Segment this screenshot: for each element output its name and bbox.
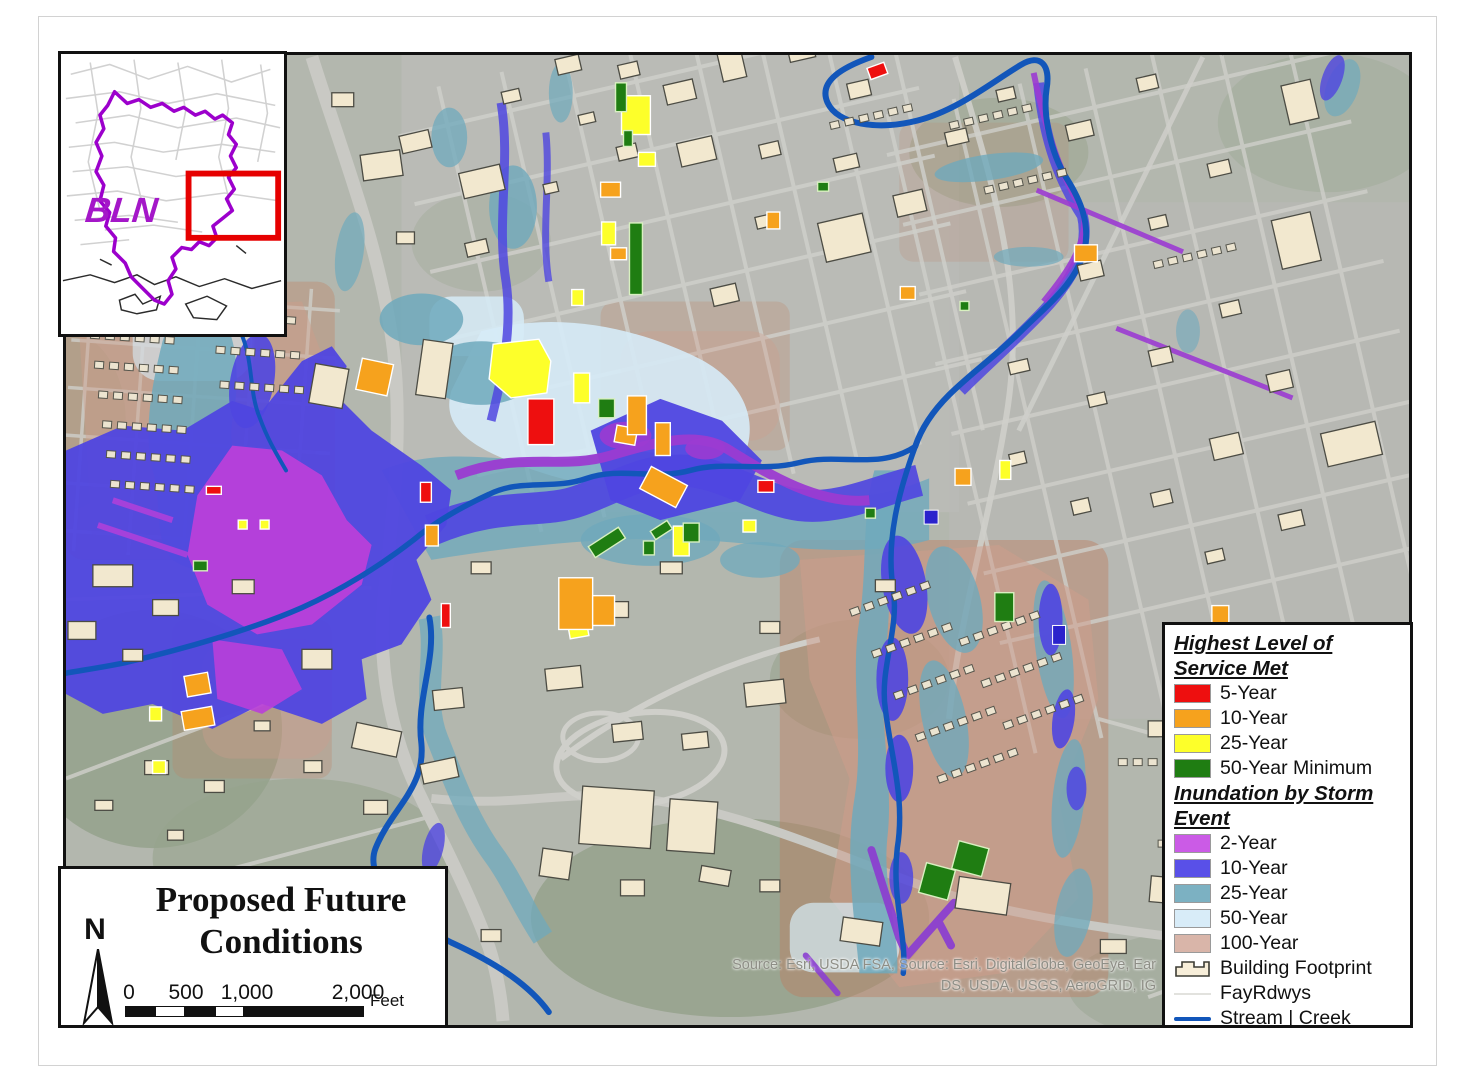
- map-title-line2: Conditions: [123, 921, 439, 963]
- legend-item-service-10yr: 10-Year: [1174, 706, 1402, 731]
- legend-item-building-footprint: Building Footprint: [1174, 956, 1402, 981]
- north-label: N: [69, 913, 121, 947]
- legend-building-footprint-icon: [1174, 959, 1211, 979]
- map-title-line1: Proposed Future: [123, 879, 439, 921]
- flood-map-page: Source: Esri, USDA FSA, Source: Esri, Di…: [0, 0, 1473, 1080]
- legend-swatch-5yr: [1174, 684, 1211, 703]
- attribution-line2: DS, USDA, USGS, AeroGRID, IG: [600, 976, 1156, 997]
- legend-item-stream-creek: Stream | Creek: [1174, 1006, 1402, 1031]
- inset-watershed-label: BLN: [83, 191, 160, 230]
- scale-bar-graphic: [125, 1006, 364, 1017]
- scale-tick-0: 0: [123, 981, 135, 1005]
- legend-item-storm-100yr: 100-Year: [1174, 931, 1402, 956]
- scale-tick-500: 500: [168, 981, 203, 1005]
- legend-item-storm-25yr: 25-Year: [1174, 881, 1402, 906]
- legend-fayrdwys-line: [1174, 993, 1211, 995]
- inset-extent-box[interactable]: [189, 174, 279, 238]
- legend-swatch-10yr: [1174, 709, 1211, 728]
- map-attribution: Source: Esri, USDA FSA, Source: Esri, Di…: [600, 955, 1156, 997]
- map-title: Proposed Future Conditions: [123, 879, 439, 963]
- inset-locator-map[interactable]: BLN: [58, 51, 287, 337]
- legend-swatch-storm-50yr: [1174, 909, 1211, 928]
- legend-swatch-storm-2yr: [1174, 834, 1211, 853]
- legend-swatch-storm-100yr: [1174, 934, 1211, 953]
- legend-item-service-50yr: 50-Year Minimum: [1174, 756, 1402, 781]
- map-legend: Highest Level of Service Met 5-Year 10-Y…: [1162, 622, 1413, 1028]
- north-arrow: N: [75, 913, 121, 1032]
- legend-item-service-25yr: 25-Year: [1174, 731, 1402, 756]
- north-arrow-icon: [78, 949, 118, 1027]
- scale-tick-1000: 1,000: [221, 981, 274, 1005]
- scale-bar: 0 500 1,000 2,000 Feet: [125, 981, 425, 1017]
- legend-item-service-5yr: 5-Year: [1174, 681, 1402, 706]
- legend-section-service-title: Highest Level of Service Met: [1174, 631, 1402, 681]
- legend-item-storm-2yr: 2-Year: [1174, 831, 1402, 856]
- legend-item-storm-10yr: 10-Year: [1174, 856, 1402, 881]
- legend-stream-line: [1174, 1017, 1211, 1021]
- legend-item-storm-50yr: 50-Year: [1174, 906, 1402, 931]
- inset-canvas: BLN: [61, 54, 284, 334]
- scale-unit-label: Feet: [370, 991, 404, 1011]
- attribution-line1: Source: Esri, USDA FSA, Source: Esri, Di…: [600, 955, 1156, 976]
- legend-item-fayrdwys: FayRdwys: [1174, 981, 1402, 1006]
- title-box: N Proposed Future Conditions 0 500 1,000…: [58, 866, 448, 1028]
- legend-swatch-50yr: [1174, 759, 1211, 778]
- legend-swatch-storm-25yr: [1174, 884, 1211, 903]
- legend-swatch-25yr: [1174, 734, 1211, 753]
- legend-section-storm-title: Inundation by Storm Event: [1174, 781, 1402, 831]
- legend-swatch-storm-10yr: [1174, 859, 1211, 878]
